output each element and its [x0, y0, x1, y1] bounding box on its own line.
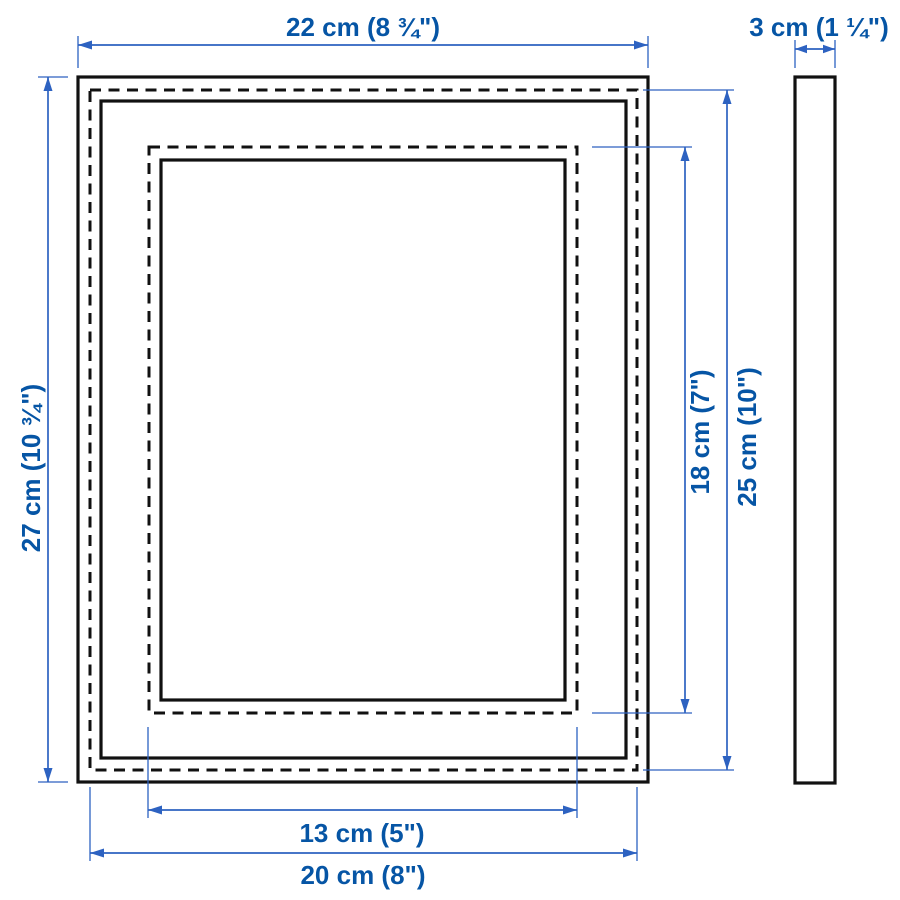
dimension-label-outer-height: 27 cm (10 ¾") — [16, 384, 46, 552]
arrowhead-left-icon — [78, 41, 92, 50]
arrowhead-down-icon — [681, 699, 690, 713]
mat-picture-size-dashed-outline — [149, 147, 577, 713]
dimension-label-opening-height: 18 cm (7") — [685, 369, 715, 494]
arrowhead-right-icon — [623, 849, 637, 858]
front-view — [78, 77, 648, 782]
dimension-opening-width: 13 cm (5") — [148, 727, 577, 848]
dimension-opening-height: 18 cm (7") — [592, 147, 715, 713]
side-view — [795, 77, 835, 783]
arrowhead-left-icon — [90, 849, 104, 858]
frame-outer-edge — [78, 77, 648, 782]
dimension-outer-width: 22 cm (8 ¾") — [78, 12, 648, 68]
frame-inner-opening — [101, 101, 626, 758]
arrowhead-left-icon — [148, 806, 162, 815]
dimension-label-outer-width: 22 cm (8 ¾") — [286, 12, 440, 42]
dimension-label-picture-width: 20 cm (8") — [300, 860, 425, 890]
arrowhead-right-icon — [563, 806, 577, 815]
arrowhead-up-icon — [681, 147, 690, 161]
dimension-label-picture-height: 25 cm (10") — [732, 367, 762, 507]
frame-dimension-diagram: 22 cm (8 ¾") 3 cm (1 ¼") 27 cm (10 ¾") — [0, 0, 900, 900]
arrowhead-right-icon — [634, 41, 648, 50]
arrowhead-up-icon — [44, 77, 53, 91]
dimension-depth: 3 cm (1 ¼") — [749, 12, 889, 68]
mat-opening — [161, 160, 565, 700]
frame-side-profile — [795, 77, 835, 783]
arrowhead-right-icon — [823, 45, 835, 53]
arrowhead-left-icon — [795, 45, 807, 53]
arrowhead-up-icon — [723, 90, 732, 104]
dimension-label-depth: 3 cm (1 ¼") — [749, 12, 889, 42]
dimension-label-opening-width: 13 cm (5") — [299, 818, 424, 848]
picture-size-dashed-outline — [90, 90, 637, 770]
dimension-outer-height: 27 cm (10 ¾") — [16, 77, 68, 782]
arrowhead-down-icon — [723, 756, 732, 770]
diagram-canvas: 22 cm (8 ¾") 3 cm (1 ¼") 27 cm (10 ¾") — [0, 0, 900, 900]
arrowhead-down-icon — [44, 768, 53, 782]
